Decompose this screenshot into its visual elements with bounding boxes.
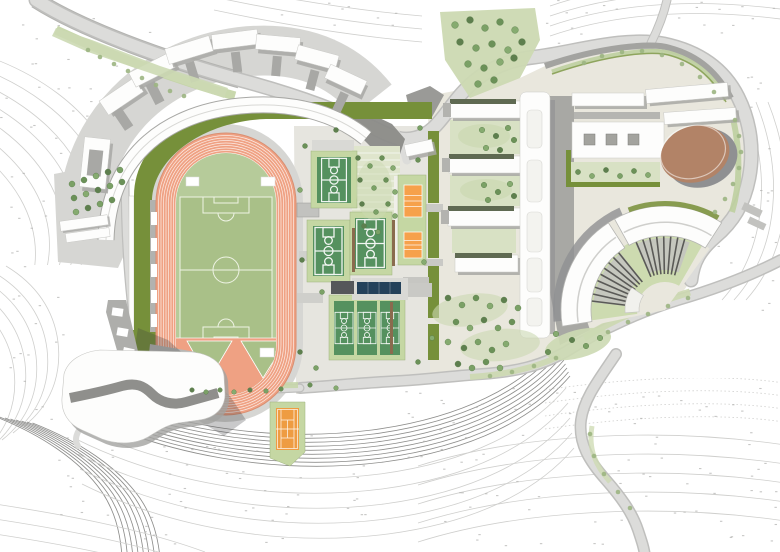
- elevation-mark: [475, 407, 477, 408]
- elevation-mark: [442, 403, 444, 404]
- elevation-mark: [656, 437, 658, 438]
- elevation-mark: [13, 299, 15, 300]
- elevation-mark: [522, 435, 524, 436]
- elevation-mark: [31, 63, 33, 64]
- elevation-mark: [558, 43, 560, 44]
- elevation-mark: [616, 9, 618, 10]
- tree: [489, 41, 496, 48]
- elevation-mark: [35, 63, 37, 64]
- elevation-mark: [439, 429, 441, 430]
- elevation-mark: [481, 404, 483, 405]
- elevation-mark: [265, 542, 267, 543]
- tree: [511, 137, 517, 143]
- elevation-mark: [408, 457, 410, 458]
- elevation-mark: [718, 9, 720, 10]
- tree: [503, 341, 509, 347]
- tree: [479, 127, 485, 133]
- elevation-mark: [772, 280, 774, 281]
- elevation-mark: [408, 413, 410, 414]
- elevation-mark: [566, 12, 568, 13]
- elevation-mark: [42, 406, 44, 407]
- elevation-mark: [764, 463, 766, 464]
- elevation-mark: [11, 252, 13, 253]
- tree: [376, 230, 381, 235]
- elevation-mark: [585, 12, 587, 13]
- tree: [109, 197, 115, 203]
- elevation-mark: [696, 7, 698, 8]
- elevation-mark: [90, 101, 92, 102]
- tree: [73, 209, 79, 215]
- elevation-mark: [67, 59, 69, 60]
- shrub: [739, 150, 744, 155]
- tree: [360, 202, 365, 207]
- tree: [279, 387, 284, 392]
- tree: [473, 295, 479, 301]
- elevation-mark: [703, 24, 705, 25]
- shrub: [680, 62, 685, 67]
- elevation-mark: [441, 400, 443, 401]
- elevation-mark: [60, 153, 62, 154]
- shrub: [602, 472, 607, 477]
- elevation-mark: [66, 437, 68, 438]
- elevation-mark: [569, 413, 571, 414]
- tree: [97, 201, 103, 207]
- elevation-mark: [469, 507, 471, 508]
- shrub: [712, 90, 717, 95]
- roof-openings: [584, 134, 639, 145]
- site-plan-canvas: [0, 0, 780, 552]
- elevation-mark: [699, 468, 701, 469]
- elevation-mark: [72, 110, 74, 111]
- tree: [314, 366, 319, 371]
- elevation-mark: [111, 450, 113, 451]
- tree: [95, 187, 101, 193]
- tree: [481, 317, 487, 323]
- tree: [119, 179, 125, 185]
- tree: [190, 388, 195, 393]
- elevation-mark: [347, 508, 349, 509]
- elevation-mark: [680, 400, 682, 401]
- elevation-mark: [112, 457, 114, 458]
- elevation-mark: [18, 218, 20, 219]
- elevation-mark: [206, 446, 208, 447]
- elevation-mark: [775, 491, 777, 492]
- elevation-mark: [55, 138, 57, 139]
- elevation-mark: [42, 201, 44, 202]
- elevation-mark: [775, 524, 777, 525]
- shrub: [660, 53, 665, 58]
- shrub: [640, 49, 645, 54]
- elevation-mark: [767, 192, 769, 193]
- tree: [391, 166, 396, 171]
- elevation-mark: [556, 393, 558, 394]
- tree: [645, 172, 650, 177]
- elevation-mark: [19, 353, 21, 354]
- elevation-mark: [353, 473, 355, 474]
- tree: [264, 389, 269, 394]
- shrub: [554, 356, 559, 361]
- elevation-mark: [628, 459, 630, 460]
- shrub: [86, 48, 91, 53]
- elevation-mark: [649, 476, 651, 477]
- elevation-mark: [131, 179, 133, 180]
- tree: [81, 177, 87, 183]
- elevation-mark: [705, 406, 707, 407]
- tree: [452, 22, 459, 29]
- elevation-mark: [168, 494, 170, 495]
- elevation-mark: [10, 367, 12, 368]
- elevation-mark: [768, 148, 770, 149]
- tree: [589, 173, 594, 178]
- elevation-mark: [580, 34, 582, 35]
- elevation-mark: [341, 8, 343, 9]
- shrub: [737, 134, 742, 139]
- elevation-mark: [741, 6, 743, 7]
- elevation-mark: [184, 507, 186, 508]
- tree: [83, 191, 89, 197]
- elevation-mark: [11, 176, 13, 177]
- tree: [298, 188, 303, 193]
- tree: [482, 25, 489, 32]
- elevation-mark: [540, 543, 542, 544]
- elevation-mark: [619, 483, 621, 484]
- elevation-mark: [732, 404, 734, 405]
- elevation-mark: [661, 458, 663, 459]
- tree: [483, 359, 489, 365]
- shrub: [140, 76, 145, 81]
- tree: [467, 325, 473, 331]
- tree: [493, 133, 499, 139]
- soccer-field: [180, 197, 272, 343]
- elevation-mark: [24, 266, 26, 267]
- elevation-mark: [718, 246, 720, 247]
- elevation-mark: [759, 388, 761, 389]
- elevation-mark: [27, 354, 29, 355]
- shrub: [628, 506, 633, 511]
- elevation-mark: [45, 215, 47, 216]
- site-plan: [0, 0, 780, 552]
- shrub: [98, 55, 103, 60]
- elevation-mark: [460, 462, 462, 463]
- spine-building: [520, 92, 555, 338]
- elevation-mark: [768, 303, 770, 304]
- elevation-mark: [364, 514, 366, 515]
- elevation-mark: [191, 449, 193, 450]
- elevation-mark: [357, 477, 359, 478]
- tree: [501, 297, 507, 303]
- elevation-mark: [57, 297, 59, 298]
- tree: [358, 178, 363, 183]
- tree: [545, 349, 551, 355]
- elevation-mark: [732, 25, 734, 26]
- tree: [445, 339, 451, 345]
- shrub: [600, 54, 605, 59]
- shrub: [620, 50, 625, 55]
- tree: [69, 181, 75, 187]
- elevation-mark: [603, 5, 605, 6]
- elevation-mark: [699, 410, 701, 411]
- tree: [445, 295, 451, 301]
- elevation-mark: [67, 475, 69, 476]
- elevation-mark: [310, 435, 312, 436]
- tree: [467, 17, 474, 24]
- elevation-mark: [459, 492, 461, 493]
- elevation-mark: [68, 87, 70, 88]
- elevation-mark: [256, 451, 258, 452]
- elevation-mark: [245, 510, 247, 511]
- elevation-mark: [333, 25, 335, 26]
- elevation-mark: [760, 491, 762, 492]
- tree: [569, 337, 575, 343]
- elevation-mark: [713, 493, 715, 494]
- tree: [386, 202, 391, 207]
- elevation-mark: [169, 474, 171, 475]
- tree: [505, 47, 512, 54]
- shrub: [646, 312, 651, 317]
- elevation-mark: [773, 8, 775, 9]
- tree: [457, 39, 464, 46]
- tree: [334, 128, 339, 133]
- elevation-mark: [30, 127, 32, 128]
- shrub: [606, 330, 611, 335]
- elevation-mark: [18, 295, 20, 296]
- elevation-mark: [144, 531, 146, 532]
- elevation-mark: [38, 87, 40, 88]
- elevation-mark: [516, 481, 518, 482]
- elevation-mark: [757, 88, 759, 89]
- tree: [465, 61, 472, 68]
- elevation-mark: [348, 6, 350, 7]
- elevation-mark: [721, 32, 723, 33]
- elevation-mark: [452, 422, 454, 423]
- elevation-mark: [151, 517, 153, 518]
- elevation-mark: [90, 88, 92, 89]
- elevation-mark: [252, 507, 254, 508]
- elevation-mark: [264, 490, 266, 491]
- elevation-mark: [654, 443, 656, 444]
- basketball-court: [350, 212, 392, 275]
- elevation-mark: [419, 393, 421, 394]
- elevation-mark: [771, 540, 773, 541]
- elevation-mark: [242, 471, 244, 472]
- shrub: [713, 210, 718, 215]
- tree: [117, 167, 123, 173]
- elevation-mark: [642, 474, 644, 475]
- tree: [483, 145, 489, 151]
- elevation-mark: [751, 77, 753, 78]
- elevation-mark: [730, 537, 732, 538]
- elevation-mark: [174, 543, 176, 544]
- shrub: [698, 75, 703, 80]
- tree: [481, 65, 488, 72]
- tree: [393, 190, 398, 195]
- elevation-mark: [686, 483, 688, 484]
- tree: [107, 183, 113, 189]
- shrub: [686, 296, 691, 301]
- elevation-mark: [353, 500, 355, 501]
- elevation-mark: [618, 470, 620, 471]
- elevation-mark: [482, 454, 484, 455]
- elevation-mark: [82, 501, 84, 502]
- elevation-mark: [658, 395, 660, 396]
- olive-west-band: [134, 196, 152, 332]
- elevation-mark: [218, 449, 220, 450]
- elevation-mark: [496, 495, 498, 496]
- tree: [497, 59, 504, 66]
- tree: [597, 335, 603, 341]
- shrub: [592, 454, 597, 459]
- tree: [575, 169, 580, 174]
- elevation-mark: [24, 381, 26, 382]
- tree: [380, 156, 385, 161]
- tree: [303, 144, 308, 149]
- elevation-mark: [149, 32, 151, 33]
- tree: [416, 158, 421, 163]
- elevation-mark: [557, 0, 559, 1]
- elevation-mark: [571, 28, 573, 29]
- elevation-mark: [476, 540, 478, 541]
- tree: [473, 45, 480, 52]
- elevation-mark: [748, 444, 750, 445]
- shrub: [488, 374, 493, 379]
- tree: [507, 181, 513, 187]
- elevation-mark: [107, 515, 109, 516]
- tree: [430, 336, 435, 341]
- elevation-mark: [10, 207, 12, 208]
- elevation-mark: [529, 404, 531, 405]
- tree: [300, 258, 305, 263]
- tree: [416, 360, 421, 365]
- elevation-mark: [282, 538, 284, 539]
- elevation-mark: [608, 411, 610, 412]
- tree: [603, 167, 608, 172]
- elevation-mark: [767, 200, 769, 201]
- elevation-mark: [615, 404, 617, 405]
- tree: [475, 339, 481, 345]
- elevation-mark: [377, 17, 379, 18]
- tree: [511, 55, 518, 62]
- shrub: [723, 197, 728, 202]
- elevation-mark: [475, 459, 477, 460]
- elevation-mark: [412, 417, 414, 418]
- elevation-mark: [757, 469, 759, 470]
- elevation-mark: [395, 13, 397, 14]
- shrub: [510, 370, 515, 375]
- elevation-mark: [774, 507, 776, 508]
- tree: [505, 125, 511, 131]
- tree: [469, 365, 475, 371]
- tree: [248, 388, 253, 393]
- elevation-mark: [356, 498, 358, 499]
- elevation-mark: [741, 411, 743, 412]
- shrub: [733, 118, 738, 123]
- elevation-mark: [93, 18, 95, 19]
- elevation-mark: [538, 496, 540, 497]
- elevation-mark: [23, 173, 25, 174]
- shrub: [154, 83, 159, 88]
- elevation-mark: [750, 432, 752, 433]
- elevation-mark: [328, 3, 330, 4]
- basketball-court: [307, 220, 350, 282]
- elevation-mark: [420, 456, 422, 457]
- tree: [362, 224, 367, 229]
- tree: [583, 343, 589, 349]
- shrub: [182, 94, 187, 99]
- tree: [631, 168, 636, 173]
- tree: [453, 319, 459, 325]
- elevation-mark: [13, 357, 15, 358]
- elevation-mark: [747, 77, 749, 78]
- elevation-mark: [441, 449, 443, 450]
- tree: [461, 345, 467, 351]
- tennis-court: [270, 402, 305, 466]
- elevation-mark: [760, 190, 762, 191]
- elevation-mark: [602, 544, 604, 545]
- elevation-mark: [287, 506, 289, 507]
- shrub: [666, 304, 671, 309]
- elevation-mark: [742, 535, 744, 536]
- shrub: [168, 89, 173, 94]
- tree: [459, 302, 465, 308]
- elevation-mark: [546, 23, 548, 24]
- elevation-mark: [683, 512, 685, 513]
- elevation-mark: [762, 310, 764, 311]
- tree: [393, 214, 398, 219]
- elevation-mark: [709, 473, 711, 474]
- elevation-mark: [214, 447, 216, 448]
- elevation-mark: [752, 237, 754, 238]
- elevation-mark: [70, 486, 72, 487]
- tree: [495, 325, 501, 331]
- elevation-mark: [50, 419, 52, 420]
- tree: [105, 169, 111, 175]
- tree: [485, 197, 491, 203]
- tree: [218, 388, 223, 393]
- elevation-mark: [86, 116, 88, 117]
- elevation-mark: [695, 511, 697, 512]
- tree: [418, 126, 423, 131]
- elevation-mark: [239, 478, 241, 479]
- elevation-mark: [0, 117, 2, 118]
- elevation-mark: [528, 509, 530, 510]
- elevation-mark: [645, 496, 647, 497]
- volleyball-courts: [398, 175, 426, 265]
- shrub: [616, 490, 621, 495]
- elevation-mark: [574, 392, 576, 393]
- elevation-mark: [153, 535, 155, 536]
- elevation-mark: [226, 473, 228, 474]
- elevation-mark: [166, 451, 168, 452]
- basketball-court-row: [329, 295, 405, 360]
- tree: [372, 186, 377, 191]
- elevation-mark: [189, 433, 191, 434]
- tree: [93, 173, 99, 179]
- elevation-mark: [405, 391, 407, 392]
- shrub: [112, 62, 117, 67]
- tree: [204, 390, 209, 395]
- elevation-mark: [751, 476, 753, 477]
- tree: [374, 210, 379, 215]
- elevation-mark: [58, 460, 60, 461]
- elevation-mark: [116, 66, 118, 67]
- tree: [553, 331, 559, 337]
- elevation-mark: [514, 409, 516, 410]
- tree: [368, 164, 373, 169]
- elevation-mark: [35, 409, 37, 410]
- elevation-mark: [505, 545, 507, 546]
- elevation-mark: [363, 465, 365, 466]
- tree: [519, 39, 526, 46]
